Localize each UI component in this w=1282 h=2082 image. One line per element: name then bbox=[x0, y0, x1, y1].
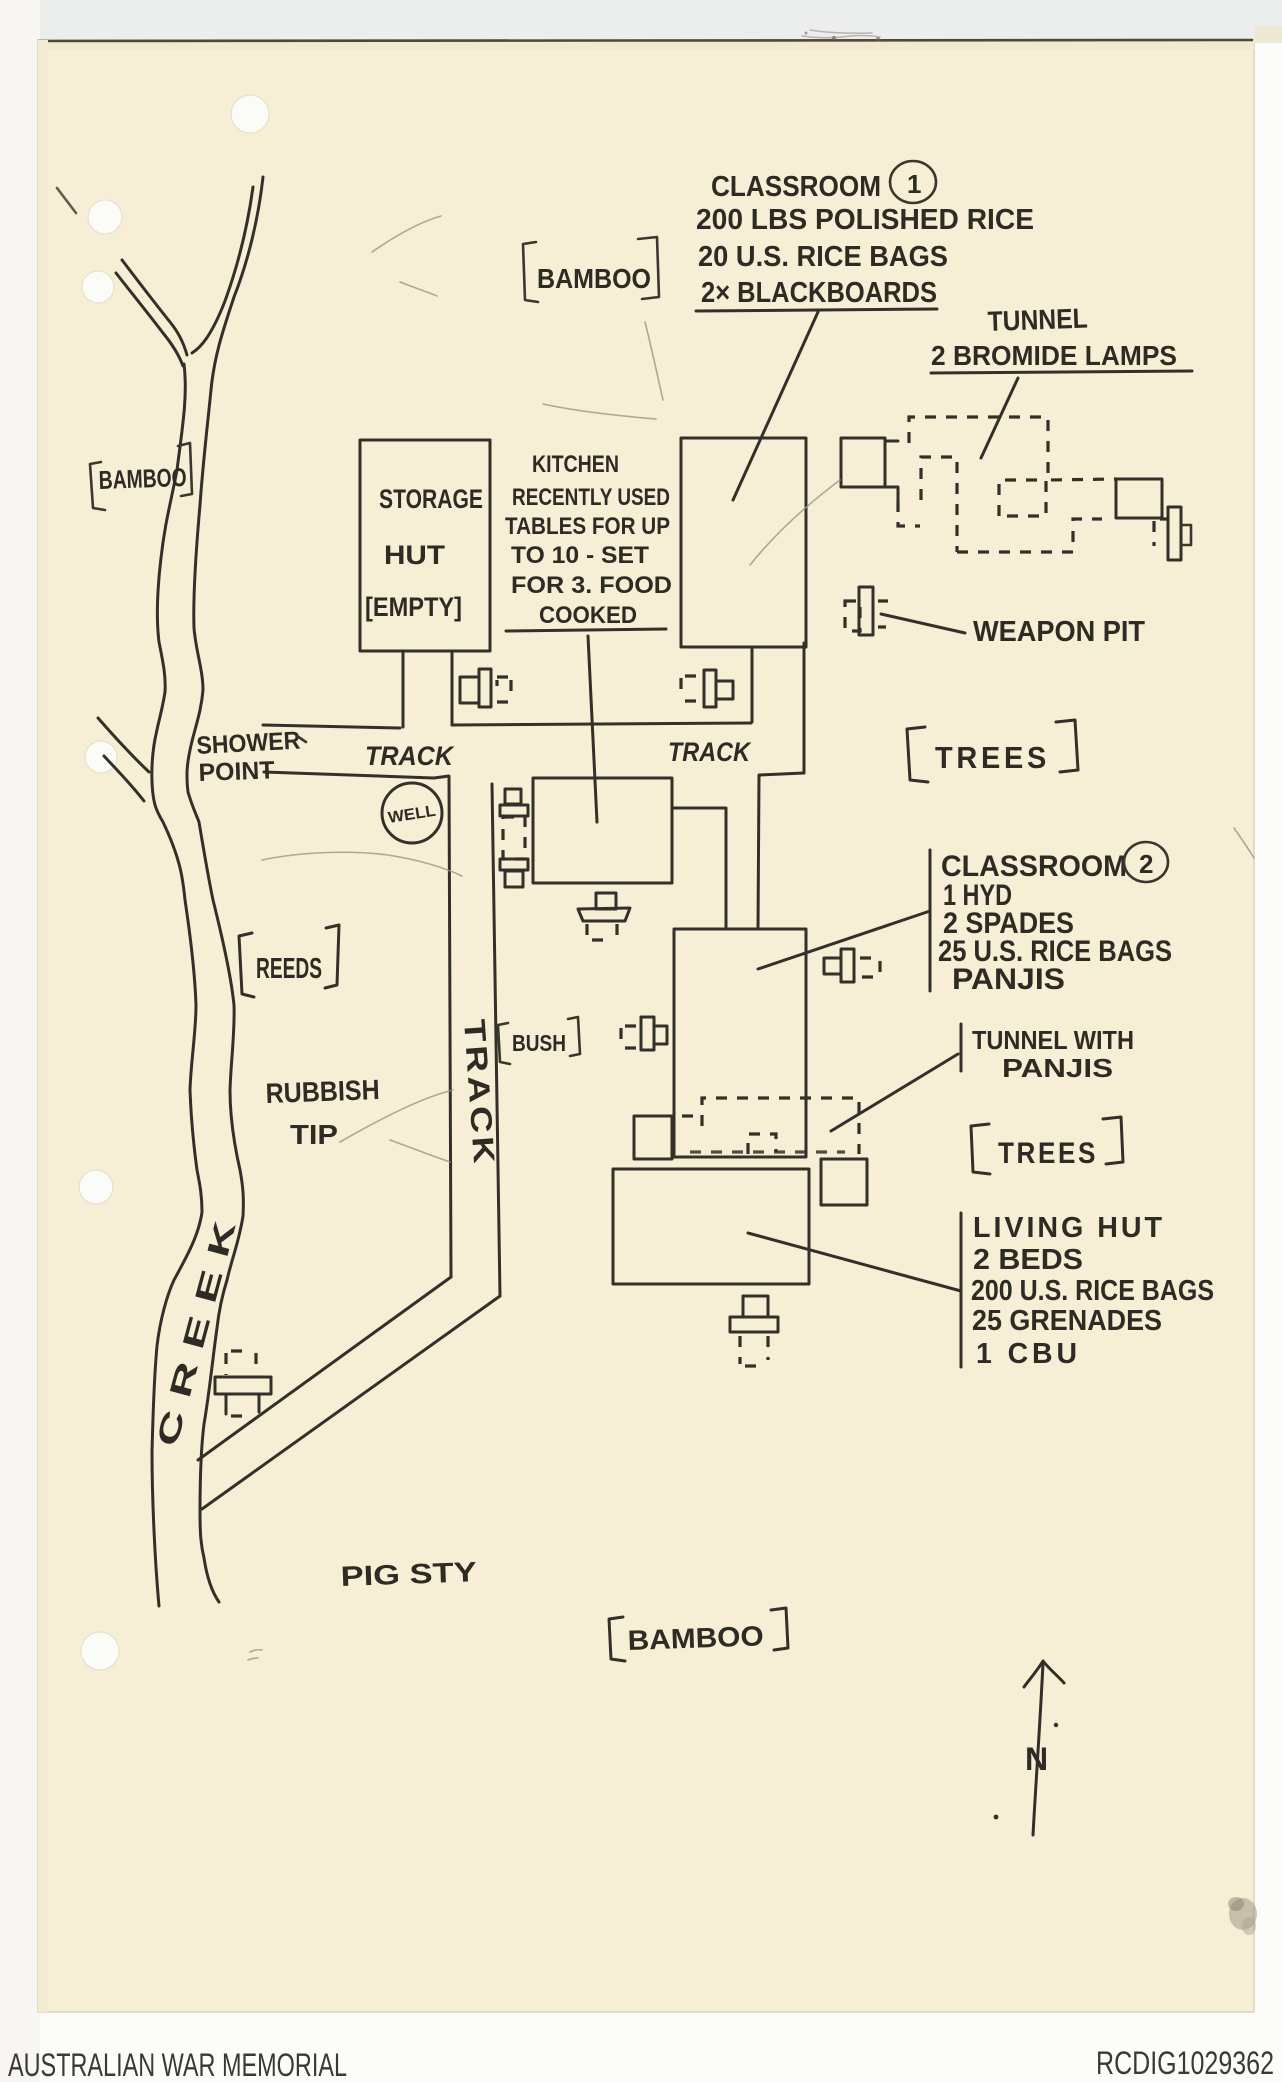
svg-text:[EMPTY]: [EMPTY] bbox=[365, 592, 462, 622]
svg-text:TIP: TIP bbox=[290, 1119, 338, 1150]
svg-text:BUSH: BUSH bbox=[512, 1030, 566, 1056]
svg-text:TREES: TREES bbox=[935, 740, 1050, 775]
svg-text:CLASSROOM: CLASSROOM bbox=[711, 171, 881, 203]
svg-text:N: N bbox=[1025, 1741, 1048, 1777]
svg-text:2× BLACKBOARDS: 2× BLACKBOARDS bbox=[701, 277, 937, 309]
svg-text:200 U.S. RICE BAGS: 200 U.S. RICE BAGS bbox=[971, 1275, 1214, 1307]
svg-text:2: 2 bbox=[1139, 849, 1153, 879]
svg-text:BAMBOO: BAMBOO bbox=[537, 263, 651, 294]
svg-text:PANJIS: PANJIS bbox=[1002, 1053, 1113, 1083]
svg-text:SHOWER: SHOWER bbox=[196, 727, 301, 760]
svg-text:2 BROMIDE LAMPS: 2 BROMIDE LAMPS bbox=[931, 340, 1177, 371]
svg-text:TREES: TREES bbox=[998, 1137, 1098, 1170]
svg-text:PIG STY: PIG STY bbox=[340, 1556, 477, 1592]
svg-text:TABLES FOR UP: TABLES FOR UP bbox=[505, 513, 670, 540]
svg-text:1 CBU: 1 CBU bbox=[976, 1338, 1081, 1370]
svg-text:LIVING HUT: LIVING HUT bbox=[973, 1212, 1165, 1244]
svg-text:RUBBISH: RUBBISH bbox=[265, 1074, 380, 1109]
svg-text:BAMBOO: BAMBOO bbox=[627, 1620, 764, 1656]
svg-text:WEAPON PIT: WEAPON PIT bbox=[973, 616, 1145, 648]
svg-text:200 LBS POLISHED RICE: 200 LBS POLISHED RICE bbox=[696, 204, 1034, 236]
svg-text:25 GRENADES: 25 GRENADES bbox=[972, 1305, 1162, 1337]
svg-text:RECENTLY USED: RECENTLY USED bbox=[512, 484, 670, 511]
svg-text:AUSTRALIAN WAR MEMORIAL: AUSTRALIAN WAR MEMORIAL bbox=[8, 2047, 347, 2082]
svg-text:TUNNEL: TUNNEL bbox=[987, 303, 1088, 337]
svg-text:REEDS: REEDS bbox=[256, 953, 322, 985]
svg-text:FOR 3. FOOD: FOR 3. FOOD bbox=[511, 572, 672, 599]
svg-text:1: 1 bbox=[907, 169, 921, 199]
svg-text:BAMBOO: BAMBOO bbox=[98, 462, 187, 495]
svg-text:PANJIS: PANJIS bbox=[952, 963, 1065, 996]
svg-text:RCDIG1029362: RCDIG1029362 bbox=[1096, 2045, 1274, 2081]
svg-text:COOKED: COOKED bbox=[539, 602, 637, 629]
svg-text:20 U.S. RICE BAGS: 20 U.S. RICE BAGS bbox=[698, 241, 948, 273]
svg-text:HUT: HUT bbox=[384, 540, 446, 570]
svg-text:TO 10 - SET: TO 10 - SET bbox=[511, 542, 649, 569]
svg-text:STORAGE: STORAGE bbox=[379, 484, 483, 514]
svg-text:KITCHEN: KITCHEN bbox=[532, 451, 619, 478]
svg-text:TRACK: TRACK bbox=[668, 737, 752, 767]
svg-text:TRACK: TRACK bbox=[365, 741, 455, 771]
svg-text:TUNNEL WITH: TUNNEL WITH bbox=[972, 1025, 1134, 1055]
svg-text:POINT: POINT bbox=[198, 756, 275, 787]
svg-text:2 BEDS: 2 BEDS bbox=[973, 1244, 1083, 1276]
